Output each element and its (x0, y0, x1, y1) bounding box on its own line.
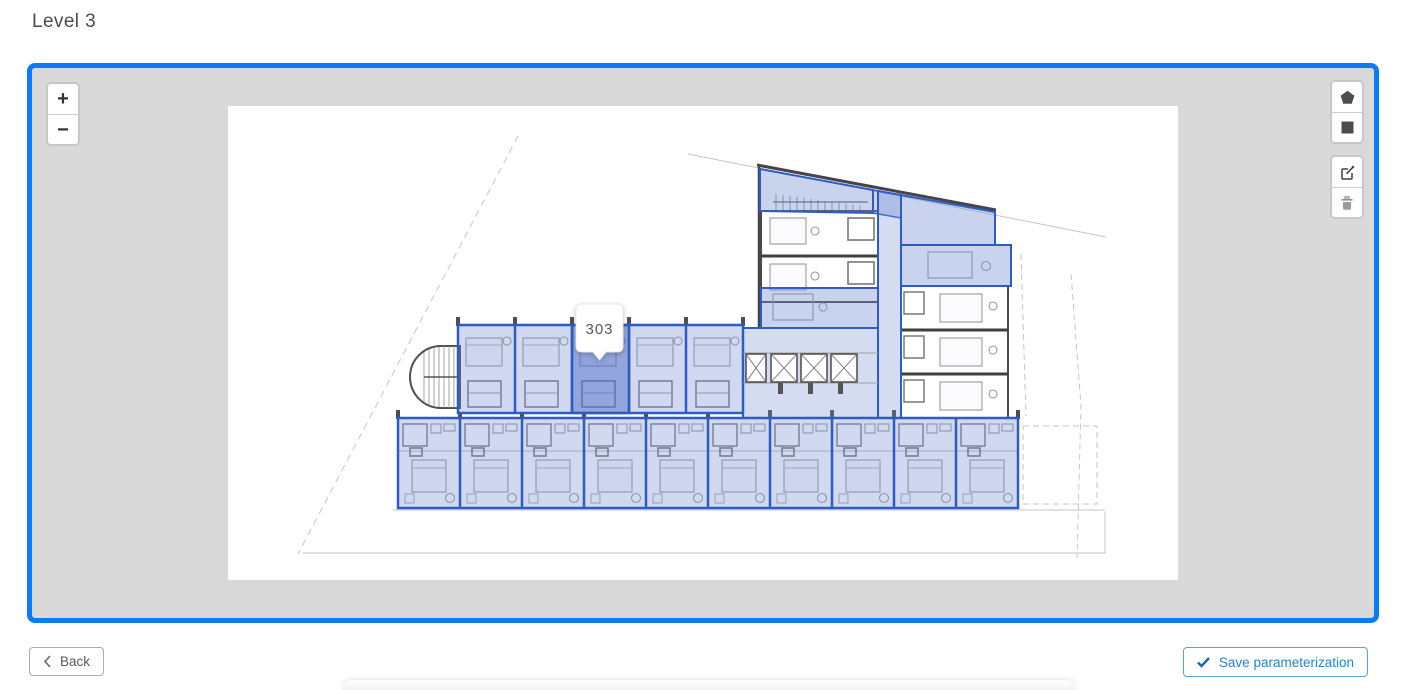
draw-toolbar (1330, 80, 1364, 144)
page-title: Level 3 (32, 11, 96, 33)
curved-stairwell (410, 346, 460, 408)
trash-icon (1339, 195, 1355, 211)
zoom-control: + − (46, 82, 80, 146)
draw-rectangle-button[interactable] (1332, 112, 1362, 142)
edit-toolbar (1330, 155, 1364, 219)
next-panel-edge (342, 680, 1076, 690)
room-tooltip: 303 (576, 304, 623, 360)
save-parameterization-button[interactable]: Save parameterization (1183, 647, 1368, 677)
floorplan-image: 303 (228, 106, 1178, 580)
back-button[interactable]: Back (29, 647, 104, 676)
back-button-label: Back (60, 654, 90, 669)
edit-layers-button[interactable] (1332, 157, 1362, 187)
check-icon (1197, 657, 1210, 668)
zoom-in-button[interactable]: + (48, 84, 78, 114)
save-button-label: Save parameterization (1219, 655, 1354, 670)
floorplan-map[interactable]: + − (27, 63, 1379, 623)
draw-polygon-button[interactable] (1332, 82, 1362, 112)
room-tooltip-label: 303 (585, 321, 613, 338)
rectangle-icon (1341, 121, 1354, 134)
polygon-icon (1340, 90, 1355, 105)
delete-layers-button[interactable] (1332, 187, 1362, 217)
floorplan-viewport[interactable]: 303 (228, 106, 1178, 580)
edit-icon (1340, 165, 1355, 180)
zoom-out-button[interactable]: − (48, 114, 78, 144)
chevron-left-icon (43, 655, 52, 668)
